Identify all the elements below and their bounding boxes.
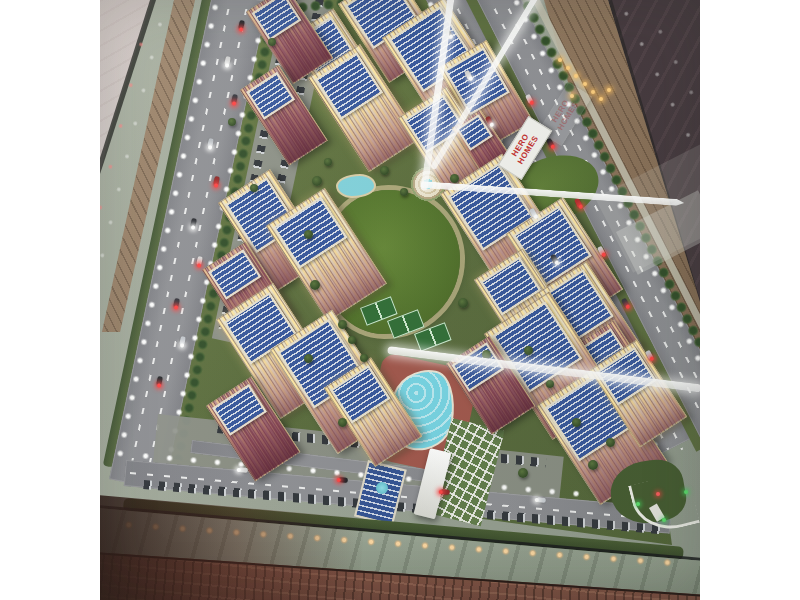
car bbox=[339, 477, 348, 483]
headlight bbox=[237, 467, 241, 471]
chandelier-reflection bbox=[583, 82, 587, 86]
tree bbox=[360, 354, 368, 362]
tree bbox=[348, 336, 356, 344]
taillight bbox=[156, 383, 161, 388]
chandelier-reflection bbox=[591, 90, 595, 94]
taillight bbox=[238, 27, 243, 32]
tree bbox=[380, 166, 389, 175]
tree bbox=[458, 298, 468, 308]
car bbox=[537, 497, 546, 503]
chandelier-reflection bbox=[558, 58, 562, 62]
lit-tree-light bbox=[684, 490, 688, 494]
tree bbox=[250, 184, 258, 192]
photo-stage: HERO HOMES HERO HOMES bbox=[0, 0, 800, 600]
chandelier-reflection bbox=[574, 74, 578, 78]
letterbox-left bbox=[0, 0, 100, 600]
taillight bbox=[231, 101, 236, 106]
taillight bbox=[439, 489, 443, 493]
tree bbox=[338, 418, 347, 427]
tree bbox=[524, 346, 533, 355]
tree bbox=[324, 158, 332, 166]
headlight bbox=[224, 63, 229, 68]
gate-light bbox=[656, 492, 660, 496]
chandelier-reflection bbox=[599, 97, 603, 101]
car bbox=[441, 489, 450, 495]
tree bbox=[304, 230, 313, 239]
headlight bbox=[535, 497, 539, 501]
lit-tree-light bbox=[636, 502, 640, 506]
tree bbox=[606, 438, 615, 447]
taillight bbox=[196, 263, 201, 268]
tree bbox=[312, 176, 322, 186]
tree bbox=[338, 320, 347, 329]
tree bbox=[572, 418, 581, 427]
lit-tree-light bbox=[662, 518, 666, 522]
tree bbox=[268, 38, 276, 46]
tree bbox=[228, 118, 236, 126]
tree bbox=[588, 460, 598, 470]
taillight bbox=[173, 305, 178, 310]
tree bbox=[546, 380, 554, 388]
rooftop-pool bbox=[376, 482, 388, 494]
car bbox=[239, 467, 248, 473]
headlight bbox=[179, 343, 184, 348]
headlight bbox=[207, 145, 212, 150]
chandelier-reflection bbox=[607, 88, 611, 92]
tree bbox=[400, 188, 408, 196]
headlight bbox=[190, 225, 195, 230]
tree bbox=[304, 354, 313, 363]
letterbox-right bbox=[700, 0, 800, 600]
chandelier-reflection bbox=[566, 66, 570, 70]
model-photo: HERO HOMES HERO HOMES bbox=[100, 0, 700, 600]
tree bbox=[518, 468, 528, 478]
taillight bbox=[337, 477, 341, 481]
tree bbox=[450, 174, 459, 183]
taillight bbox=[213, 183, 218, 188]
tree bbox=[310, 280, 320, 290]
